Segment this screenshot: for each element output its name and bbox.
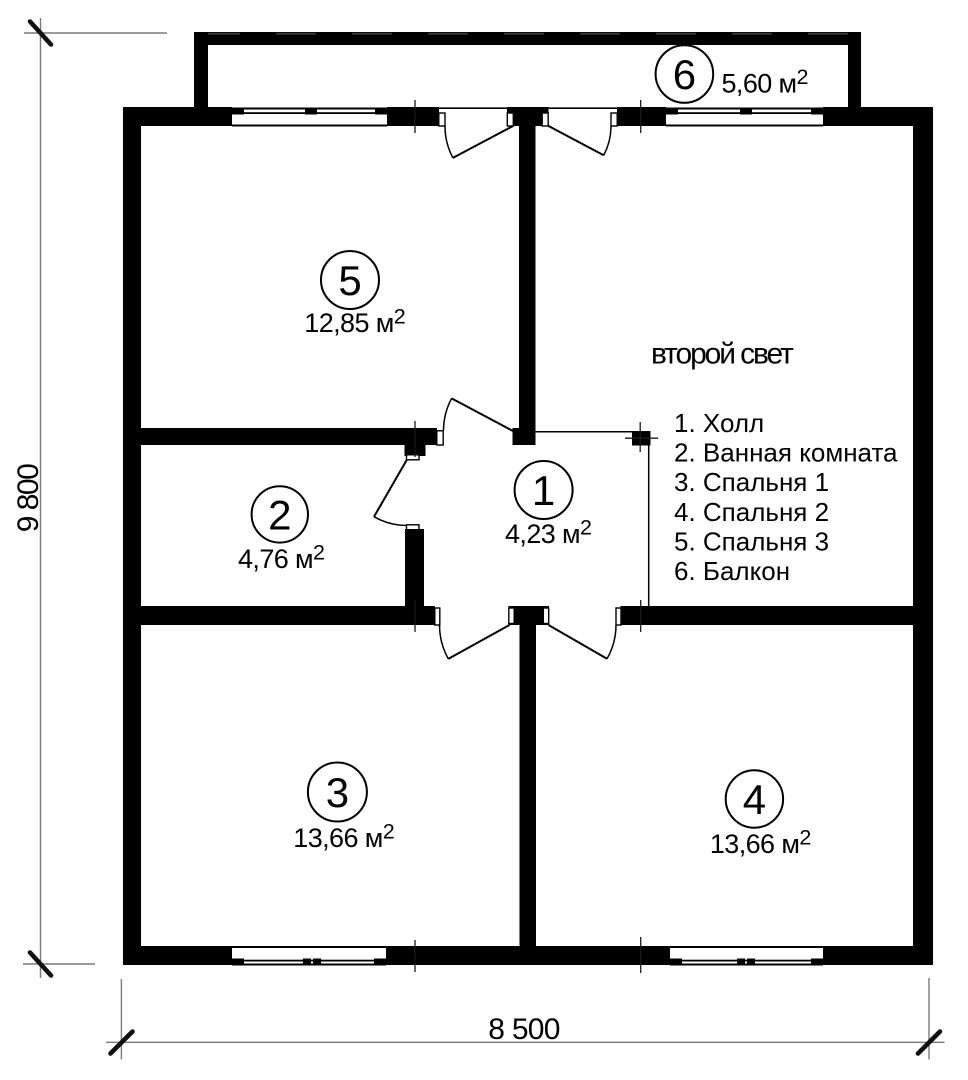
- svg-text:3: 3: [326, 769, 349, 816]
- svg-text:2: 2: [268, 491, 291, 538]
- svg-text:5: 5: [338, 257, 361, 304]
- svg-text:13,66 м2: 13,66 м2: [293, 820, 394, 854]
- svg-text:4,76 м2: 4,76 м2: [238, 541, 325, 575]
- svg-text:9 800: 9 800: [12, 464, 45, 532]
- svg-text:2. Ванная комната: 2. Ванная комната: [674, 438, 898, 468]
- svg-text:6: 6: [673, 51, 696, 98]
- svg-text:3. Спальня 1: 3. Спальня 1: [674, 467, 829, 497]
- svg-text:5. Спальня 3: 5. Спальня 3: [674, 526, 829, 556]
- svg-text:1. Холл: 1. Холл: [674, 408, 764, 438]
- svg-text:4. Спальня 2: 4. Спальня 2: [674, 497, 829, 527]
- svg-text:5,60 м2: 5,60 м2: [722, 65, 809, 99]
- svg-text:12,85 м2: 12,85 м2: [304, 304, 405, 338]
- svg-text:4,23 м2: 4,23 м2: [505, 516, 592, 550]
- svg-text:6. Балкон: 6. Балкон: [674, 556, 790, 586]
- svg-text:4: 4: [743, 776, 766, 823]
- svg-text:13,66 м2: 13,66 м2: [710, 826, 811, 860]
- svg-text:8 500: 8 500: [488, 1013, 560, 1046]
- svg-text:второй свет: второй свет: [651, 337, 794, 370]
- svg-text:1: 1: [532, 467, 555, 514]
